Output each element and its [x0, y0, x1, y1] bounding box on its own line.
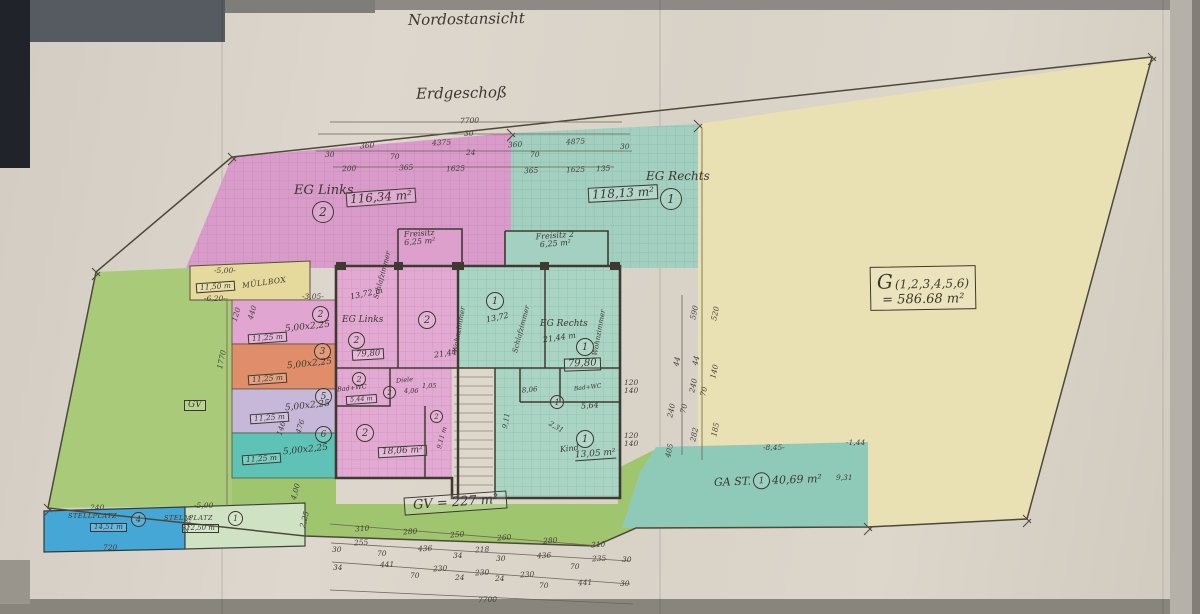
dimension-label: 1625	[566, 165, 585, 175]
dimension-label: 70	[698, 386, 709, 397]
dimension-label: 235	[592, 554, 607, 564]
dimension-label: 250	[450, 530, 465, 540]
dimension-label: 7700	[478, 595, 497, 605]
dimension-label: 436	[418, 544, 433, 554]
dimension-label: 34	[453, 551, 463, 560]
dimension-label: 120	[230, 306, 243, 322]
dimension-label: 720	[103, 543, 117, 552]
dimension-label: 2,25	[298, 510, 311, 528]
dimension-label: 520	[709, 306, 721, 322]
dimension-label: 24	[455, 573, 465, 582]
dimension-label: 70	[377, 549, 387, 558]
dimension-label: 280	[403, 527, 418, 537]
dimension-label: 218	[475, 545, 490, 555]
dimension-label: 255	[354, 538, 369, 548]
dimension-label: 185	[709, 422, 721, 438]
dimension-label: 44	[690, 355, 701, 366]
dimension-label: -5,00	[194, 501, 213, 510]
dimension-label: -5,00-	[214, 266, 236, 275]
dimension-label: 360	[360, 141, 375, 151]
dimension-label: 476	[294, 418, 307, 434]
dimension-label: 9,31	[836, 473, 853, 482]
dimension-label: 1625	[446, 164, 465, 174]
dimension-label: 441	[578, 578, 593, 588]
dimension-label: 240	[665, 403, 677, 419]
dimension-label: 30	[325, 150, 335, 159]
dimension-label: 240	[90, 503, 104, 512]
dimension-label: 30	[620, 142, 630, 151]
plan-photo: Nordostansicht Erdgeschoß EG Links 2 116…	[0, 0, 1200, 614]
dimension-label: 2,25	[181, 514, 194, 532]
dimension-label: 44	[671, 356, 682, 367]
dimension-label: 441	[380, 560, 395, 570]
dimension-label: 405	[663, 443, 675, 459]
dimension-label: -3,05-	[302, 292, 324, 301]
dimension-label: 1770	[215, 349, 228, 370]
dimension-label: 70	[410, 571, 420, 580]
dimension-label: 7700	[460, 116, 479, 126]
dimension-label: 365	[399, 163, 414, 172]
dimension-label: 24	[495, 574, 505, 583]
dimension-label: 360	[508, 140, 523, 150]
dimension-label: 4,00	[289, 482, 302, 500]
dimension-label: 590	[688, 305, 700, 321]
dimension-label: 70	[530, 150, 540, 159]
dimension-label: -6,20-	[204, 294, 226, 303]
dimension-label: 436	[537, 551, 552, 561]
dimension-label: 440	[246, 304, 259, 320]
dimension-label: -8,45-	[763, 443, 785, 452]
dimension-label: 30	[622, 555, 632, 564]
dimension-label: 30	[332, 545, 342, 554]
dimension-label: 34	[333, 563, 343, 572]
dimension-label: 260	[497, 533, 512, 543]
dimension-label: 70	[539, 581, 549, 590]
dimension-label: 70	[390, 152, 400, 161]
dimension-label: 30	[620, 579, 630, 588]
dimension-label: 282	[688, 427, 700, 443]
dimension-label: 280	[543, 536, 558, 546]
dimension-label: 200	[342, 164, 357, 173]
dimension-label: 140	[624, 439, 638, 448]
dimension-label: 310	[355, 524, 370, 534]
dimension-label: 146	[275, 420, 288, 436]
dimension-label: -1,44	[846, 438, 865, 447]
dimension-label: 140	[708, 364, 720, 380]
dimension-label: 30	[464, 129, 474, 138]
dimension-label: 230	[475, 568, 490, 578]
dimension-label: 240	[687, 378, 699, 394]
dimension-label: 70	[570, 562, 580, 571]
dimension-label: 135	[596, 164, 611, 173]
dimension-label: 230	[520, 570, 535, 580]
dimension-label: 4375	[432, 138, 452, 148]
dimension-label: 140	[624, 386, 638, 395]
dimension-label: 230	[433, 564, 448, 574]
dimension-label: 310	[591, 540, 606, 550]
dimension-label: 30	[496, 554, 506, 563]
dimension-layer: 7700303036070437524360704875302003651625…	[0, 0, 1200, 614]
dimension-label: 365	[524, 166, 539, 175]
dimension-label: 4875	[566, 137, 586, 147]
dimension-label: 24	[466, 148, 476, 157]
dimension-label: 70	[678, 403, 689, 414]
